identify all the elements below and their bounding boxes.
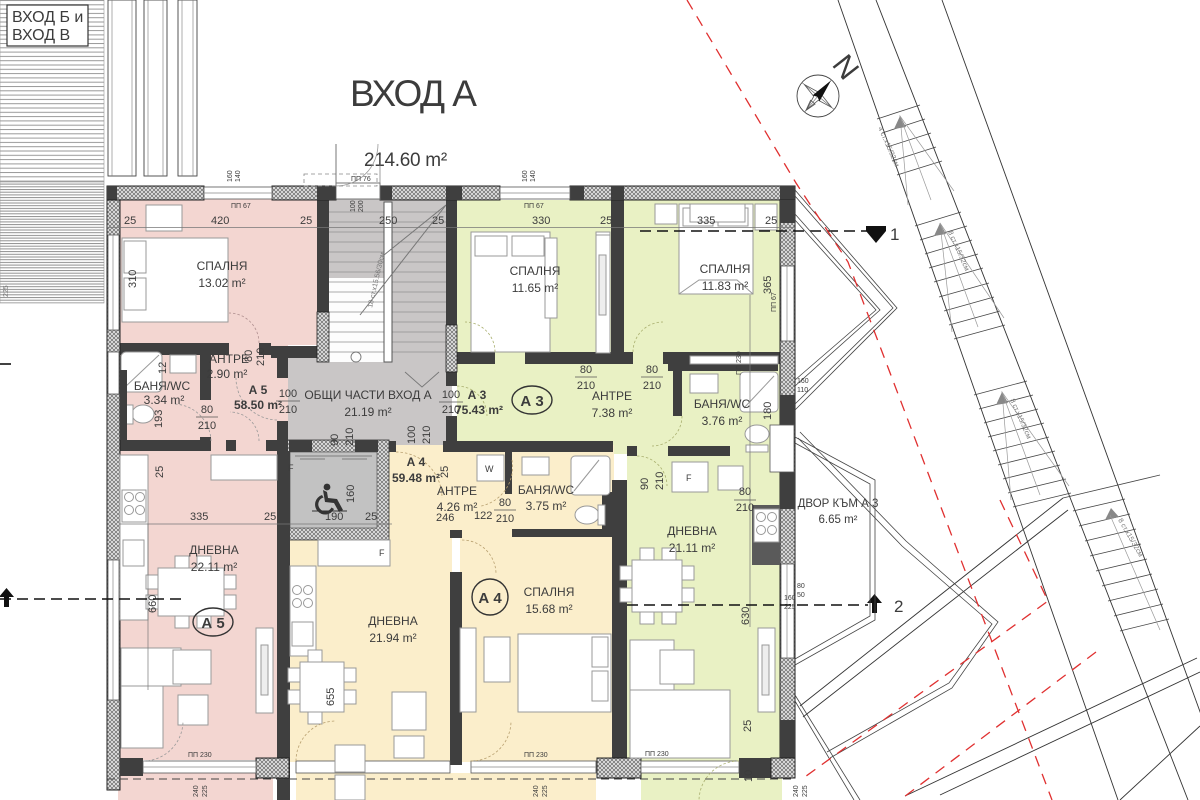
- svg-text:ВХОД Б и: ВХОД Б и: [12, 9, 83, 26]
- svg-text:210: 210: [496, 513, 514, 525]
- svg-text:250: 250: [379, 215, 397, 227]
- svg-text:193: 193: [153, 410, 165, 428]
- svg-text:25: 25: [264, 511, 276, 523]
- svg-text:А 3: А 3: [520, 393, 543, 410]
- svg-text:25: 25: [154, 466, 166, 478]
- svg-text:80: 80: [646, 364, 658, 376]
- svg-text:25: 25: [300, 215, 312, 227]
- svg-text:ДНЕВНА: ДНЕВНА: [667, 524, 716, 538]
- svg-text:СПАЛНЯ: СПАЛНЯ: [700, 262, 751, 276]
- svg-text:25: 25: [365, 511, 377, 523]
- svg-text:140: 140: [235, 170, 242, 182]
- svg-text:ПП 230: ПП 230: [736, 351, 743, 375]
- svg-text:140: 140: [530, 170, 537, 182]
- svg-text:21.11 m²: 21.11 m²: [669, 541, 715, 555]
- svg-text:100: 100: [442, 389, 460, 401]
- svg-text:160: 160: [522, 170, 529, 182]
- svg-text:90: 90: [639, 478, 651, 490]
- svg-text:ВХОД В: ВХОД В: [12, 27, 70, 44]
- svg-text:240: 240: [193, 785, 200, 797]
- svg-text:25: 25: [439, 466, 451, 478]
- svg-text:25: 25: [765, 215, 777, 227]
- svg-text:F: F: [288, 463, 294, 473]
- svg-text:80: 80: [797, 583, 805, 590]
- svg-text:210: 210: [255, 348, 267, 366]
- svg-text:ВХОД А: ВХОД А: [350, 73, 477, 114]
- svg-text:2: 2: [894, 597, 903, 616]
- svg-text:190: 190: [325, 511, 343, 523]
- svg-text:2.90 m²: 2.90 m²: [207, 367, 248, 381]
- svg-text:АНТРЕ: АНТРЕ: [209, 352, 249, 366]
- svg-text:W: W: [485, 464, 494, 474]
- svg-text:80: 80: [201, 404, 213, 416]
- svg-text:225: 225: [802, 785, 809, 797]
- svg-text:СПАЛНЯ: СПАЛНЯ: [524, 585, 575, 599]
- svg-text:F: F: [379, 548, 385, 558]
- svg-text:100: 100: [406, 426, 418, 444]
- svg-text:59.48 m²: 59.48 m²: [392, 471, 440, 485]
- svg-text:А 4: А 4: [478, 590, 502, 607]
- svg-text:210: 210: [736, 502, 754, 514]
- svg-text:3.34 m²: 3.34 m²: [144, 393, 185, 407]
- svg-text:7.38 m²: 7.38 m²: [592, 406, 633, 420]
- svg-text:21.94 m²: 21.94 m²: [369, 631, 416, 645]
- svg-text:ПП 67: ПП 67: [231, 203, 251, 210]
- svg-text:11.83 m²: 11.83 m²: [702, 279, 748, 293]
- svg-text:ДНЕВНА: ДНЕВНА: [368, 614, 417, 628]
- svg-text:25: 25: [432, 215, 444, 227]
- svg-text:25: 25: [124, 215, 136, 227]
- svg-text:50: 50: [797, 592, 805, 599]
- svg-text:13.02 m²: 13.02 m²: [198, 276, 245, 290]
- svg-text:12: 12: [157, 362, 169, 374]
- svg-text:3.75 m²: 3.75 m²: [526, 499, 567, 513]
- svg-text:200: 200: [358, 200, 365, 212]
- svg-text:80: 80: [739, 486, 751, 498]
- svg-text:225: 225: [3, 285, 10, 297]
- svg-text:210: 210: [421, 426, 433, 444]
- svg-text:210: 210: [344, 428, 356, 446]
- svg-text:160: 160: [227, 170, 234, 182]
- svg-text:ПП 230: ПП 230: [524, 752, 548, 759]
- svg-text:3.76 m²: 3.76 m²: [702, 414, 743, 428]
- svg-text:420: 420: [211, 215, 229, 227]
- svg-text:80: 80: [499, 497, 511, 509]
- svg-text:75.43 m²: 75.43 m²: [455, 403, 503, 417]
- svg-text:660: 660: [147, 595, 159, 613]
- svg-text:4.26 m²: 4.26 m²: [437, 500, 478, 514]
- svg-text:90: 90: [329, 434, 341, 446]
- svg-text:А 3: А 3: [468, 388, 487, 402]
- svg-text:210: 210: [643, 380, 661, 392]
- svg-text:ПП 230: ПП 230: [645, 751, 669, 758]
- svg-text:335: 335: [190, 511, 208, 523]
- svg-text:330: 330: [532, 215, 550, 227]
- svg-text:15.68 m²: 15.68 m²: [525, 602, 572, 616]
- svg-text:11.65 m²: 11.65 m²: [512, 281, 558, 295]
- svg-text:ПП 67: ПП 67: [771, 292, 778, 312]
- svg-text:БАНЯ/WC: БАНЯ/WC: [694, 397, 751, 411]
- svg-text:210: 210: [654, 472, 666, 490]
- svg-text:210: 210: [198, 420, 216, 432]
- svg-text:А 5: А 5: [201, 615, 224, 632]
- svg-text:225: 225: [202, 785, 209, 797]
- svg-text:180: 180: [762, 402, 774, 420]
- svg-text:22.11 m²: 22.11 m²: [191, 560, 237, 574]
- svg-text:58.50 m²: 58.50 m²: [234, 398, 282, 412]
- svg-text:335: 335: [697, 215, 715, 227]
- svg-text:160: 160: [784, 595, 796, 602]
- svg-text:БАНЯ/WC: БАНЯ/WC: [518, 483, 575, 497]
- svg-text:240: 240: [533, 785, 540, 797]
- svg-text:6.65 m²: 6.65 m²: [819, 514, 858, 526]
- svg-text:1: 1: [890, 225, 899, 244]
- svg-text:АНТРЕ: АНТРЕ: [592, 389, 632, 403]
- svg-text:А 4: А 4: [407, 455, 426, 469]
- svg-text:10: 10: [743, 770, 755, 782]
- svg-text:ПП 230: ПП 230: [188, 752, 212, 759]
- svg-text:225: 225: [542, 785, 549, 797]
- svg-text:80: 80: [580, 364, 592, 376]
- svg-text:БАНЯ/WC: БАНЯ/WC: [134, 379, 191, 393]
- svg-text:ПП 76: ПП 76: [351, 176, 371, 183]
- svg-text:АНТРЕ: АНТРЕ: [437, 484, 477, 498]
- svg-text:ДНЕВНА: ДНЕВНА: [189, 543, 238, 557]
- svg-text:F: F: [686, 473, 692, 483]
- svg-text:630: 630: [740, 607, 752, 625]
- svg-text:А 5: А 5: [249, 383, 268, 397]
- svg-text:25: 25: [742, 720, 754, 732]
- svg-text:ОБЩИ ЧАСТИ ВХОД А: ОБЩИ ЧАСТИ ВХОД А: [304, 388, 431, 402]
- svg-text:655: 655: [325, 688, 337, 706]
- svg-text:240: 240: [793, 785, 800, 797]
- svg-text:21.19 m²: 21.19 m²: [344, 405, 391, 419]
- svg-text:СПАЛНЯ: СПАЛНЯ: [510, 264, 561, 278]
- svg-text:365: 365: [762, 276, 774, 294]
- svg-text:25: 25: [600, 215, 612, 227]
- svg-text:ПП 67: ПП 67: [524, 203, 544, 210]
- svg-text:100: 100: [350, 200, 357, 212]
- svg-text:160: 160: [345, 485, 357, 503]
- svg-text:310: 310: [127, 270, 139, 288]
- svg-text:СПАЛНЯ: СПАЛНЯ: [197, 259, 248, 273]
- svg-text:214.60 m²: 214.60 m²: [364, 150, 447, 171]
